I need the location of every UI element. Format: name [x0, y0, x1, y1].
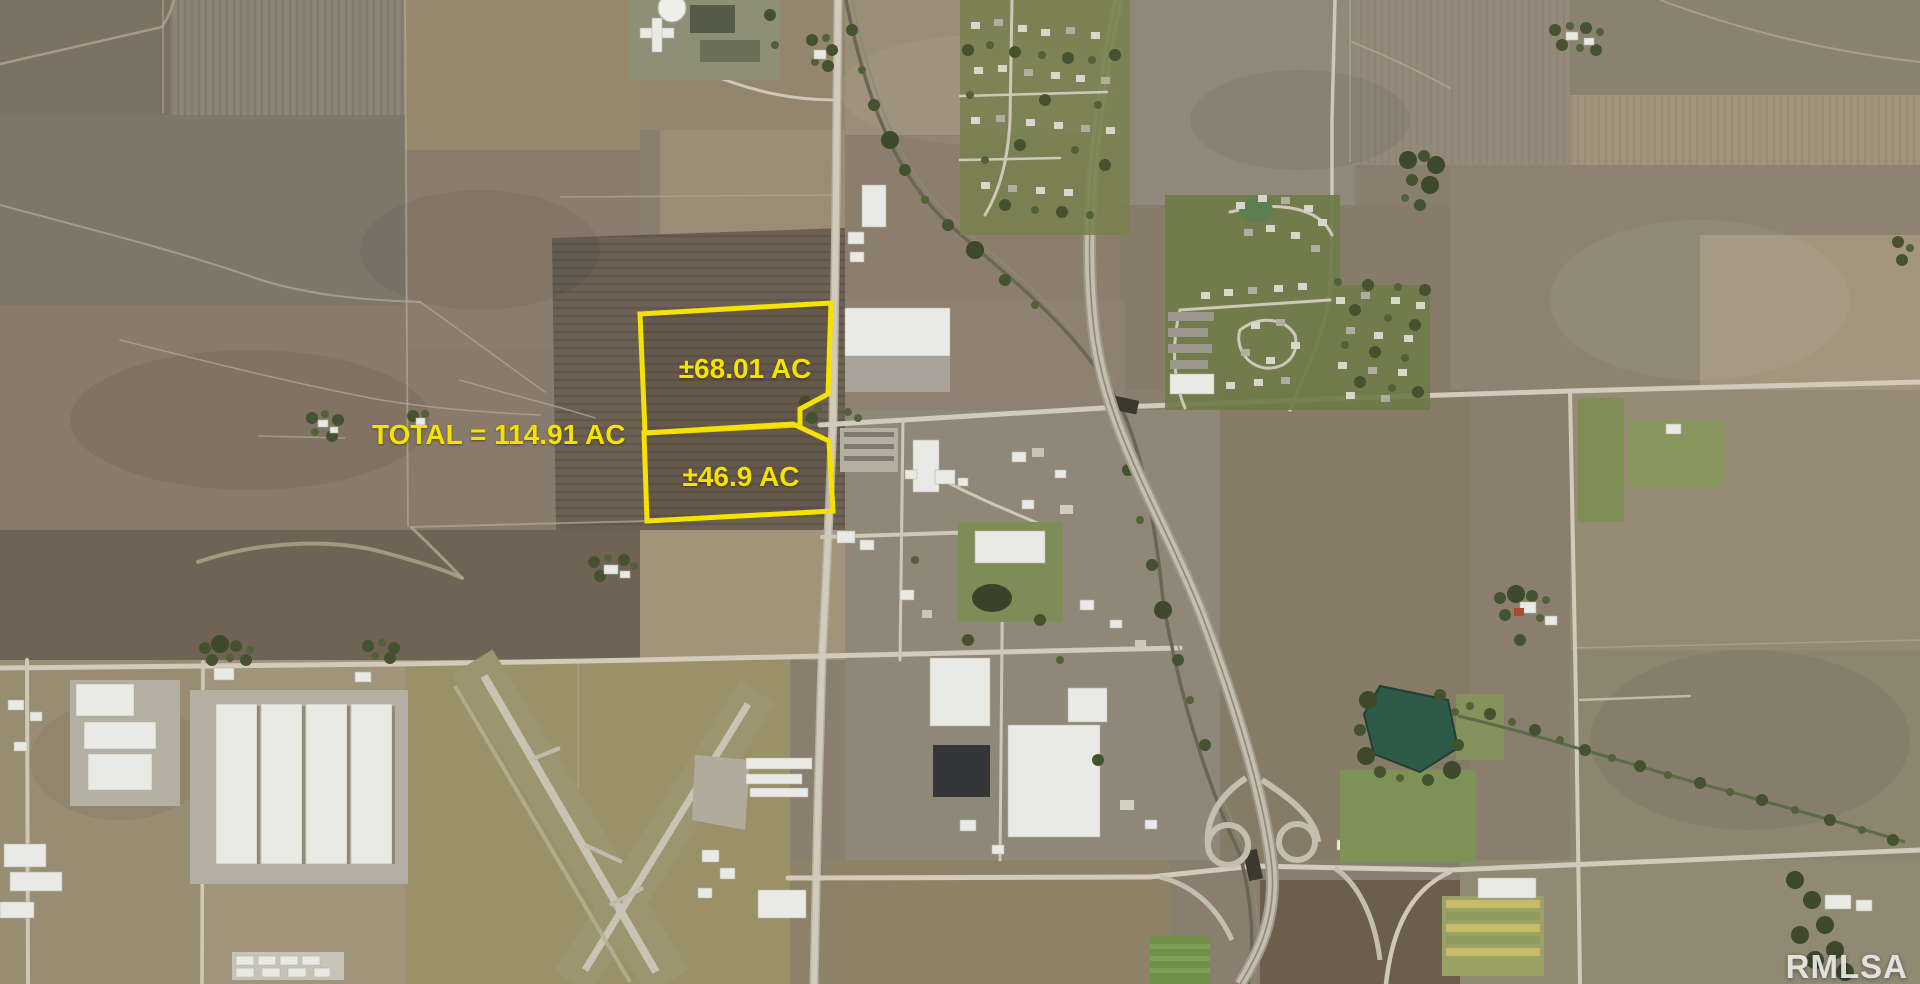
large-warehouse-northeast	[845, 308, 950, 356]
warehouse-dark-roof	[933, 745, 990, 797]
parcel-upper-acreage-label: ±68.01 AC	[679, 353, 812, 384]
aerial-map: ±68.01 AC ±46.9 AC TOTAL = 114.91 AC RML…	[0, 0, 1920, 984]
total-acreage-label: TOTAL = 114.91 AC	[372, 419, 625, 450]
largest-warehouse	[1008, 725, 1100, 837]
t-hangar-row	[746, 758, 812, 769]
grain-facility	[630, 0, 780, 80]
long-white-building	[975, 531, 1045, 563]
warehouse-white-roof	[930, 658, 990, 726]
aerial-map-canvas: ±68.01 AC ±46.9 AC TOTAL = 114.91 AC RML…	[0, 0, 1920, 984]
small-pond	[1239, 198, 1273, 222]
red-roof-building	[1514, 608, 1524, 616]
parcel-lower-acreage-label: ±46.9 AC	[682, 461, 799, 492]
rmlsa-watermark: RMLSA	[1786, 948, 1908, 984]
